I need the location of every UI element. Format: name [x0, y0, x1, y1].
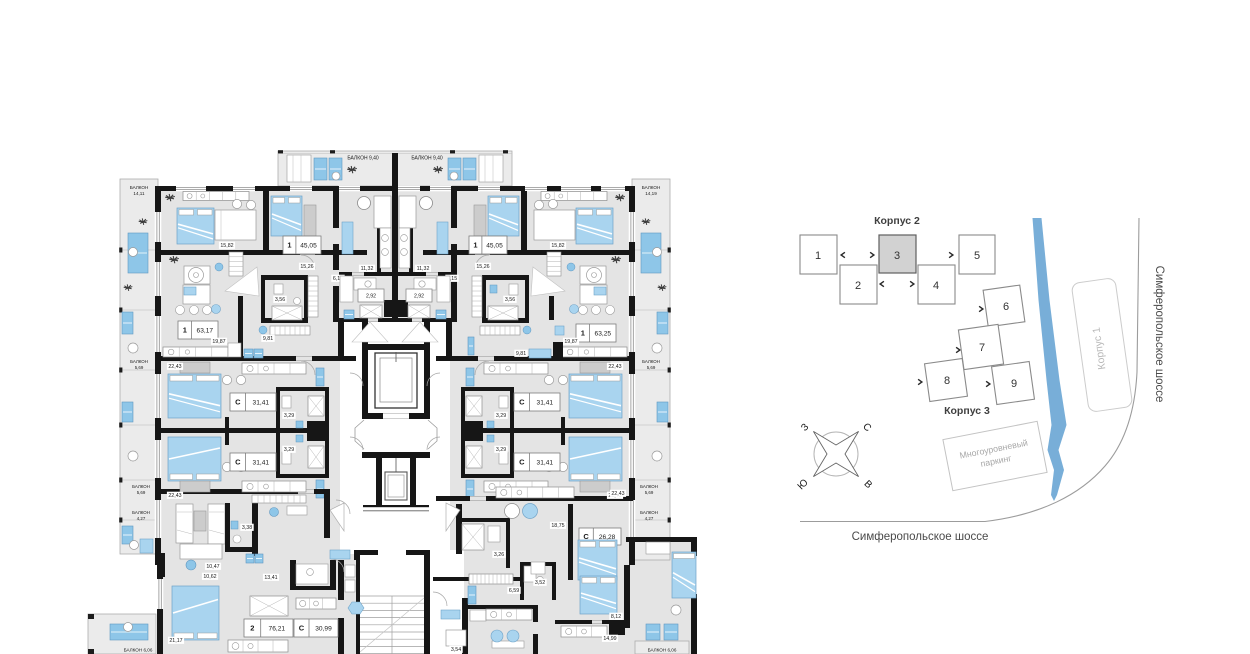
svg-text:БАЛКОН: БАЛКОН	[132, 510, 150, 515]
svg-text:3: 3	[894, 250, 900, 262]
svg-text:63,25: 63,25	[595, 330, 612, 337]
svg-text:В: В	[862, 478, 875, 491]
svg-text:БАЛКОН 6,06: БАЛКОН 6,06	[648, 648, 677, 653]
svg-text:14,11: 14,11	[133, 191, 145, 196]
svg-text:10,47: 10,47	[206, 564, 219, 570]
svg-text:4: 4	[933, 280, 939, 292]
svg-text:3,26: 3,26	[494, 552, 504, 558]
svg-text:8: 8	[944, 375, 950, 387]
svg-text:3,29: 3,29	[496, 413, 506, 419]
svg-text:БАЛКОН: БАЛКОН	[130, 359, 148, 364]
svg-text:2: 2	[250, 624, 254, 633]
svg-text:31,41: 31,41	[253, 399, 270, 406]
svg-text:63,17: 63,17	[197, 327, 214, 334]
svg-text:3,56: 3,56	[505, 297, 515, 303]
svg-text:Симферопольское шоссе: Симферопольское шоссе	[852, 531, 989, 543]
svg-text:БАЛКОН 6,06: БАЛКОН 6,06	[124, 648, 153, 653]
svg-text:45,05: 45,05	[300, 242, 317, 249]
svg-text:Симферопольское шоссе: Симферопольское шоссе	[1153, 266, 1165, 403]
svg-text:3,56: 3,56	[275, 297, 285, 303]
svg-text:5,69: 5,69	[647, 365, 656, 370]
svg-text:9,81: 9,81	[516, 351, 526, 357]
svg-text:1: 1	[473, 241, 477, 250]
svg-text:14,19: 14,19	[645, 191, 657, 196]
svg-text:БАЛКОН: БАЛКОН	[642, 185, 661, 190]
svg-text:2,92: 2,92	[366, 294, 376, 300]
svg-text:5,69: 5,69	[137, 490, 146, 495]
svg-text:14,99: 14,99	[603, 636, 616, 642]
svg-text:76,21: 76,21	[269, 625, 286, 632]
svg-text:3,54: 3,54	[451, 647, 461, 653]
svg-text:45,05: 45,05	[486, 242, 503, 249]
svg-text:БАЛКОН: БАЛКОН	[640, 484, 658, 489]
svg-text:3,29: 3,29	[496, 447, 506, 453]
svg-text:9: 9	[1011, 378, 1017, 390]
svg-text:31,41: 31,41	[537, 399, 554, 406]
svg-text:22,43: 22,43	[168, 364, 181, 370]
svg-text:4,27: 4,27	[137, 516, 146, 521]
svg-text:3,29: 3,29	[284, 447, 294, 453]
svg-text:С: С	[235, 398, 241, 407]
svg-text:3,38: 3,38	[242, 525, 252, 531]
svg-text:5: 5	[974, 250, 980, 262]
svg-text:4,27: 4,27	[645, 516, 654, 521]
svg-text:7: 7	[979, 342, 985, 354]
svg-text:31,41: 31,41	[253, 459, 270, 466]
svg-text:1: 1	[183, 326, 187, 335]
svg-text:С: С	[299, 624, 305, 633]
svg-text:22,43: 22,43	[168, 493, 181, 499]
svg-text:БАЛКОН 9,40: БАЛКОН 9,40	[347, 156, 379, 162]
svg-text:10,62: 10,62	[203, 574, 216, 580]
svg-text:БАЛКОН: БАЛКОН	[132, 484, 150, 489]
svg-text:БАЛКОН 9,40: БАЛКОН 9,40	[411, 156, 443, 162]
svg-text:З: З	[799, 422, 811, 434]
svg-text:5,69: 5,69	[645, 490, 654, 495]
svg-text:3,52: 3,52	[535, 580, 545, 586]
svg-text:Корпус 3: Корпус 3	[944, 405, 990, 417]
svg-text:15,82: 15,82	[551, 243, 564, 249]
svg-text:30,99: 30,99	[315, 625, 332, 632]
svg-text:15,26: 15,26	[300, 264, 313, 270]
svg-text:БАЛКОН: БАЛКОН	[642, 359, 660, 364]
svg-text:6,59: 6,59	[509, 588, 519, 594]
svg-text:6: 6	[1003, 301, 1009, 313]
svg-text:Корпус 2: Корпус 2	[874, 215, 920, 227]
svg-text:15,82: 15,82	[220, 243, 233, 249]
svg-text:11,32: 11,32	[417, 266, 430, 272]
svg-text:Ю: Ю	[796, 477, 811, 492]
svg-text:18,75: 18,75	[551, 523, 564, 529]
svg-text:15,26: 15,26	[476, 264, 489, 270]
svg-text:8,12: 8,12	[611, 614, 621, 620]
svg-text:21,17: 21,17	[169, 638, 182, 644]
svg-text:3,29: 3,29	[284, 413, 294, 419]
svg-text:9,81: 9,81	[263, 336, 273, 342]
svg-text:1: 1	[581, 329, 585, 338]
svg-text:5,69: 5,69	[135, 365, 144, 370]
svg-text:С: С	[519, 398, 525, 407]
svg-text:С: С	[860, 421, 873, 434]
svg-text:БАЛКОН: БАЛКОН	[640, 510, 658, 515]
svg-text:С: С	[519, 458, 525, 467]
svg-text:11,32: 11,32	[361, 266, 374, 272]
svg-text:22,43: 22,43	[608, 364, 621, 370]
svg-text:2,92: 2,92	[414, 294, 424, 300]
svg-text:31,41: 31,41	[537, 459, 554, 466]
svg-text:БАЛКОН: БАЛКОН	[130, 185, 149, 190]
svg-text:2: 2	[855, 280, 861, 292]
svg-text:19,87: 19,87	[564, 339, 577, 345]
svg-text:19,87: 19,87	[212, 339, 225, 345]
svg-text:С: С	[235, 458, 241, 467]
svg-text:13,41: 13,41	[264, 575, 277, 581]
svg-text:1: 1	[287, 241, 291, 250]
svg-text:22,43: 22,43	[611, 491, 624, 497]
svg-text:1: 1	[815, 250, 821, 262]
